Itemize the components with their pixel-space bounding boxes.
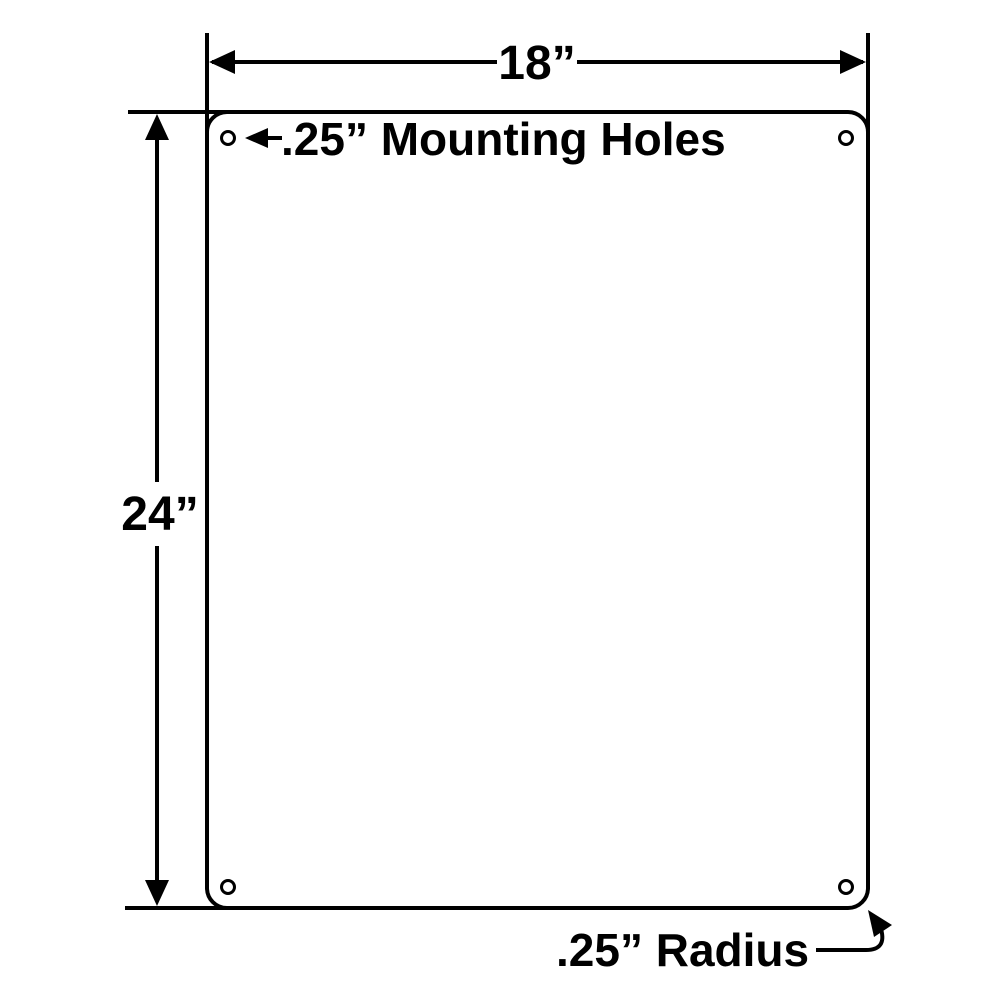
mounting-holes-label: .25” Mounting Holes — [281, 113, 726, 165]
corner-radius-label: .25” Radius — [556, 924, 809, 976]
panel-outline — [207, 112, 868, 908]
corner-radius-arrow-icon — [868, 910, 892, 937]
width-arrow-left-icon — [209, 50, 235, 74]
mounting-hole-bottom-left — [222, 881, 235, 894]
diagram-canvas: 18” 24” .25” Mounting Holes .25” Radius — [0, 0, 1000, 1000]
mounting-hole-top-left — [222, 132, 235, 145]
corner-radius-leader-line — [816, 929, 882, 950]
width-dimension-label: 18” — [498, 37, 575, 90]
height-dimension-label: 24” — [121, 488, 198, 541]
width-arrow-right-icon — [840, 50, 866, 74]
mounting-hole-top-right — [840, 132, 853, 145]
height-arrow-down-icon — [145, 880, 169, 906]
panel-dimension-diagram: 18” 24” .25” Mounting Holes .25” Radius — [0, 0, 1000, 1000]
height-arrow-up-icon — [145, 114, 169, 140]
mounting-hole-bottom-right — [840, 881, 853, 894]
